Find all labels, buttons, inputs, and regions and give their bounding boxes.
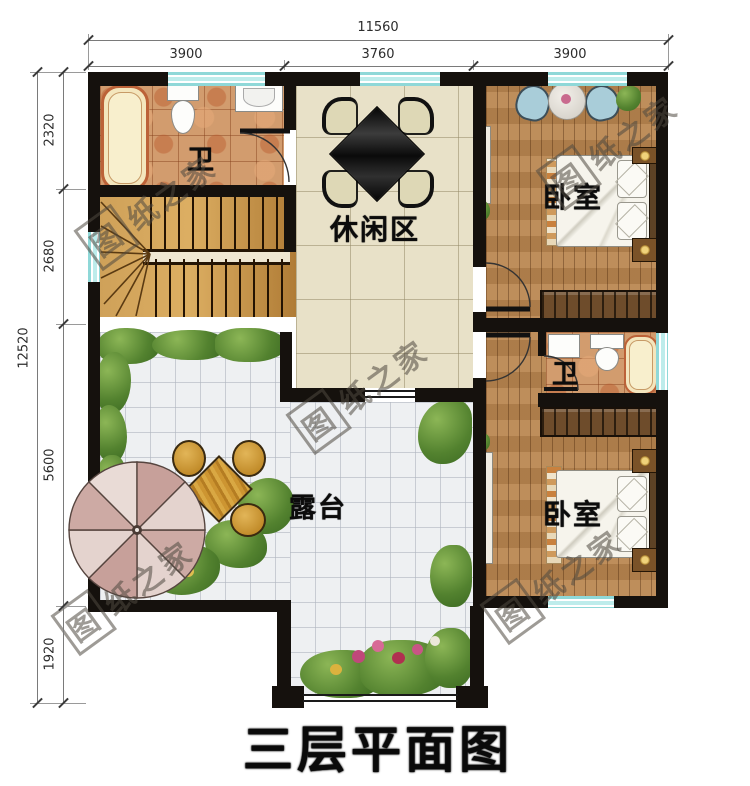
dim-top-total: 11560 — [357, 20, 398, 35]
dim-top-seg-1: 3900 — [169, 47, 202, 62]
pillow — [617, 202, 647, 240]
wall — [470, 606, 484, 692]
floor-plan-sheet: 卫 休闲区 卧室 卫 卧室 露台 图纸之家 图纸之家 图纸之家 图纸之家 图纸之… — [0, 0, 750, 786]
wall-post — [272, 686, 304, 708]
plan-title: 三层平面图 — [243, 710, 513, 782]
dim-top-seg-3: 3900 — [553, 47, 586, 62]
bathtub — [624, 335, 658, 395]
flower — [392, 652, 405, 664]
window — [360, 72, 440, 86]
terrace-edge-line — [303, 694, 458, 696]
shrub — [430, 545, 472, 607]
wall — [415, 388, 473, 402]
sink-basin — [243, 88, 275, 107]
bathtub — [101, 85, 149, 191]
wardrobe — [540, 407, 661, 437]
dimension-line-top-segments — [88, 66, 668, 67]
wall — [277, 600, 291, 692]
bathtub-basin — [629, 340, 653, 390]
nightstand — [632, 238, 658, 262]
wall — [486, 318, 668, 332]
stairs-lower-flight — [155, 259, 290, 317]
wall — [284, 197, 296, 252]
wall — [473, 72, 486, 267]
shrub — [152, 330, 224, 360]
dim-left-seg-4: 1920 — [43, 637, 58, 670]
dimension-line-left-segments — [63, 72, 64, 703]
room-label-bathroom-mid: 卫 — [552, 354, 580, 391]
room-label-terrace: 露台 — [289, 486, 347, 525]
dim-left-seg-2: 2680 — [43, 239, 58, 272]
dim-left-seg-1: 2320 — [43, 113, 58, 146]
dimension-line-top-total — [88, 40, 668, 41]
terrace-edge-line — [303, 700, 458, 702]
nightstand — [632, 548, 658, 572]
flower — [330, 664, 342, 675]
dim-left-total: 12520 — [17, 327, 32, 368]
shrub — [215, 328, 287, 362]
terrace-stool — [230, 503, 266, 537]
terrace-stool — [165, 498, 197, 532]
pillow — [617, 476, 647, 512]
window — [548, 72, 627, 86]
wall — [88, 332, 100, 612]
wall — [473, 312, 486, 332]
flower — [412, 644, 423, 655]
bathtub-basin — [108, 92, 142, 184]
leisure-chair — [398, 97, 434, 135]
toilet-tank — [167, 84, 199, 101]
wall — [473, 378, 486, 608]
dim-left-seg-3: 5600 — [43, 448, 58, 481]
nightstand — [632, 449, 658, 473]
flower — [352, 650, 365, 663]
room-label-leisure: 休闲区 — [330, 208, 420, 248]
dim-top-seg-2: 3760 — [361, 47, 394, 62]
window — [656, 333, 668, 390]
dimension-line-left-total — [37, 72, 38, 703]
wall — [538, 393, 668, 407]
window — [168, 72, 265, 86]
flower — [430, 636, 440, 646]
table-flowers — [561, 94, 571, 104]
terrace-stool — [232, 440, 266, 477]
wall — [538, 318, 546, 356]
wall — [88, 72, 100, 332]
wall — [284, 72, 296, 130]
flower — [372, 640, 384, 652]
